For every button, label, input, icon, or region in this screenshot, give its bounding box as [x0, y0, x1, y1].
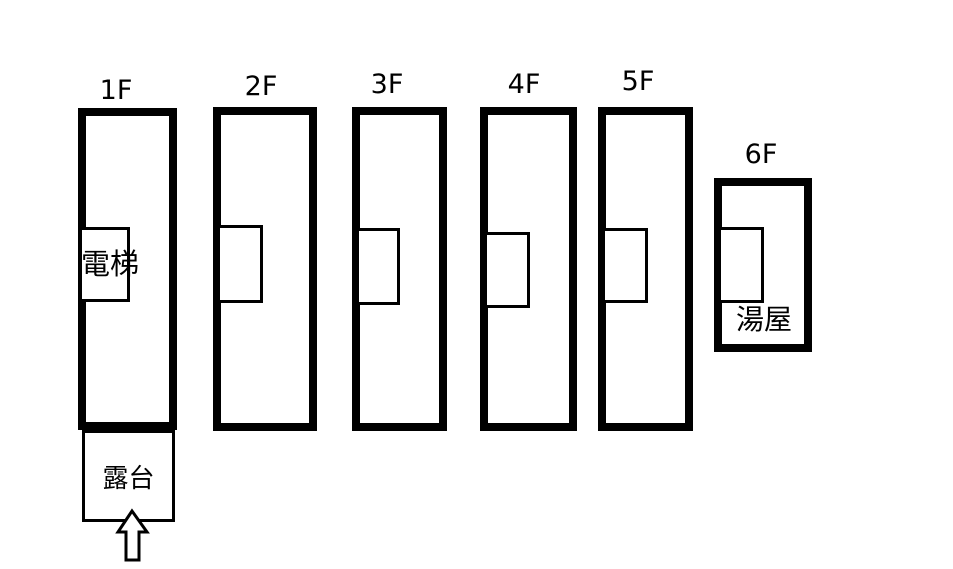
elevator-room-2f	[217, 225, 263, 303]
entrance-up-arrow-icon	[112, 505, 156, 565]
elevator-label: 電梯	[81, 250, 139, 279]
floor-label-4f: 4F	[508, 71, 541, 98]
floor-label-5f: 5F	[622, 68, 655, 95]
floor-label-2f: 2F	[245, 73, 278, 100]
floor-label-3f: 3F	[371, 71, 404, 98]
elevator-room-6f	[718, 227, 764, 303]
elevator-room-5f	[602, 228, 648, 303]
elevator-room-3f	[356, 228, 400, 305]
bathhouse-label: 湯屋	[736, 306, 792, 334]
floor-label-6f: 6F	[745, 141, 778, 168]
terrace-label: 露台	[102, 466, 154, 492]
elevator-room-4f	[484, 232, 530, 308]
floor-label-1f: 1F	[100, 77, 133, 104]
floor-plan-canvas: 1F 2F 3F 4F 5F 6F 電梯 湯屋 露台	[0, 0, 953, 569]
